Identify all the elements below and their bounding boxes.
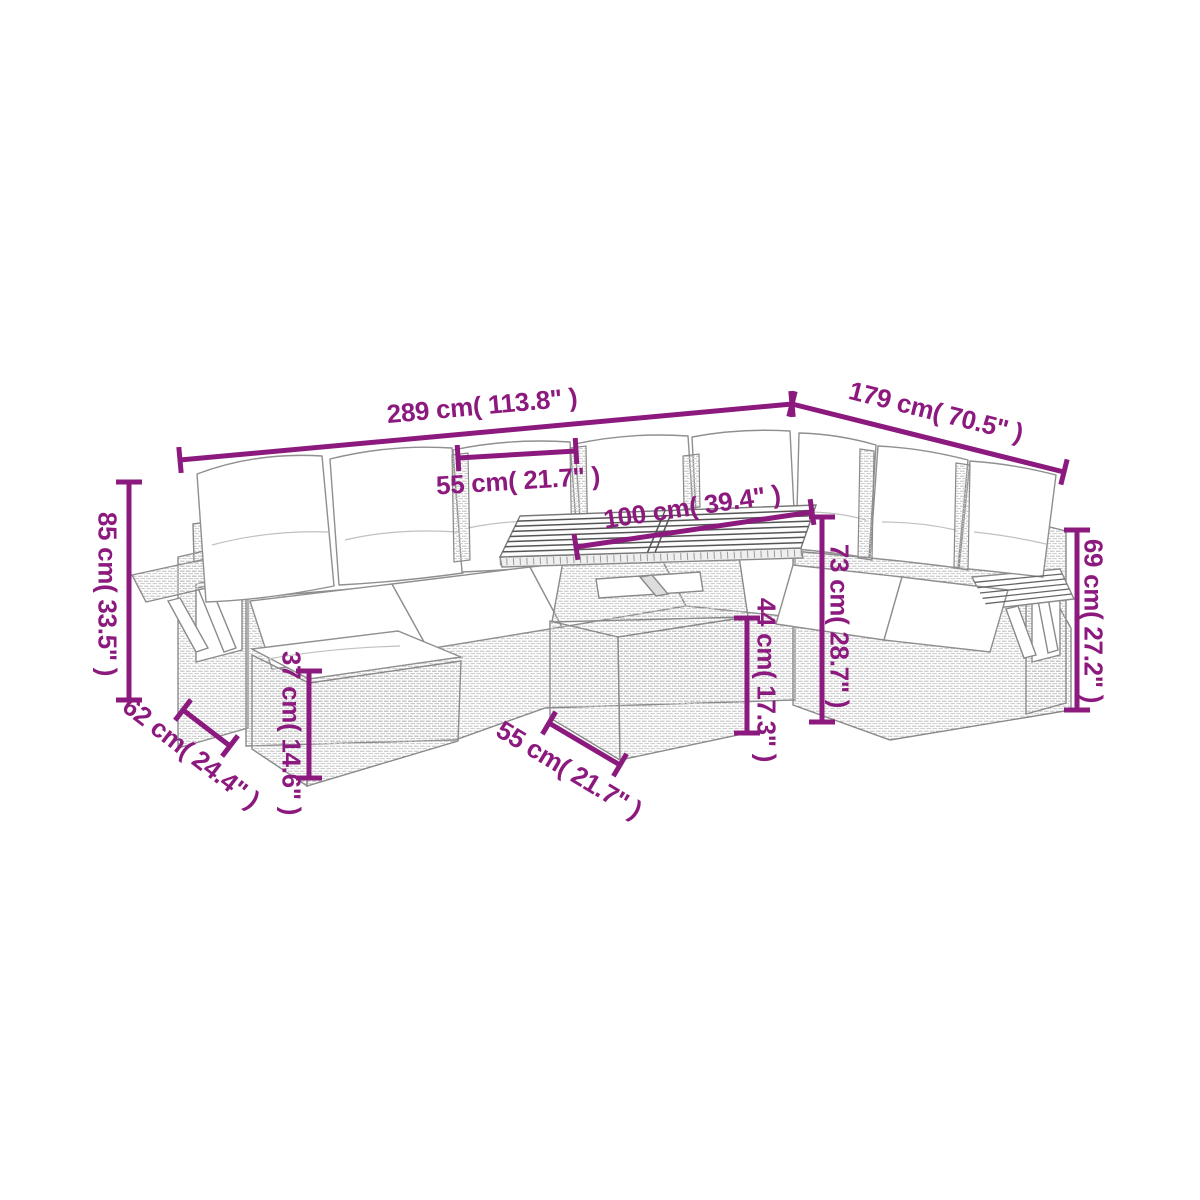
footstool [252,631,461,786]
back-cushion [870,446,968,568]
table-base-left-face [550,621,620,760]
back-cushion [197,455,334,602]
back-cushion [959,461,1056,577]
table-base-right-face [618,617,747,760]
dimension-diagram: 289 cm( 113.8" )179 cm( 70.5" )55 cm( 21… [0,0,1200,1200]
footstool-right-face [307,661,461,786]
back-cushion [330,447,463,585]
furniture-line-art [0,0,1200,1200]
seat-cushion [884,577,1008,652]
